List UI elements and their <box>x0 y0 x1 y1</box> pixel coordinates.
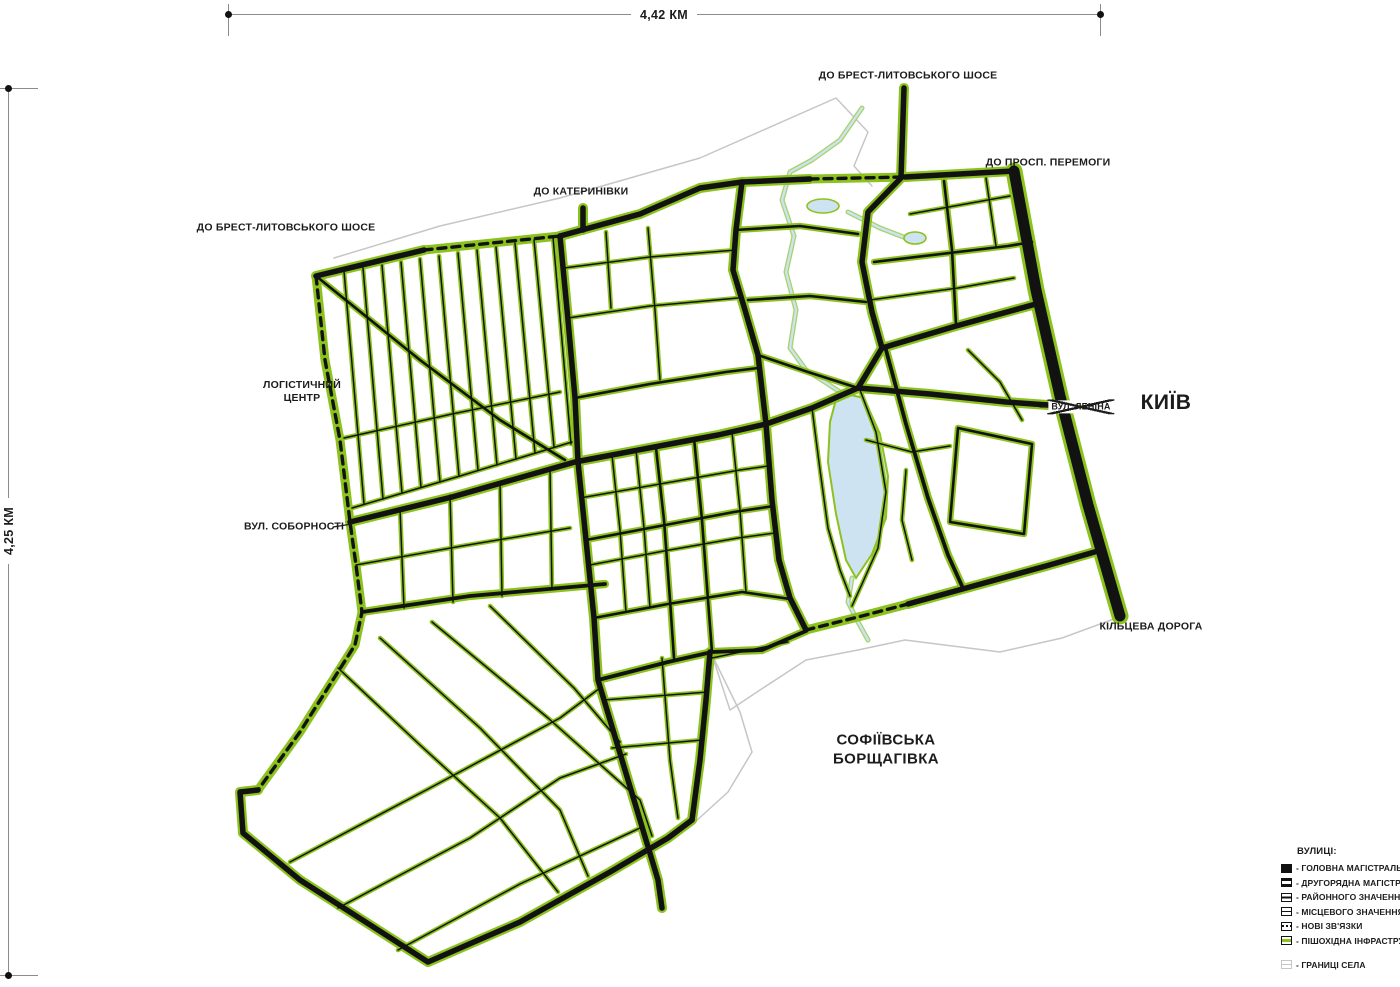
legend-item: - РАЙОННОГО ЗНАЧЕННЯ <box>1281 892 1399 902</box>
pedestrian-infrastructure-casing <box>902 470 912 560</box>
road-main-magistral <box>240 790 692 962</box>
road-local <box>612 740 702 748</box>
legend-swatch-pedestrian-icon <box>1281 936 1292 945</box>
legend-title: ВУЛИЦІ: <box>1297 846 1399 857</box>
road-main-magistral <box>901 88 904 178</box>
legend-item: - ДРУГОРЯДНА МАГІСТРАЛЬНА <box>1281 878 1399 888</box>
pedestrian-infrastructure-casing <box>258 276 362 790</box>
road-local <box>458 253 478 470</box>
road-local <box>356 528 570 565</box>
legend-swatch-local-icon <box>1281 907 1292 916</box>
legend-swatch-main-icon <box>1281 864 1292 873</box>
road-local <box>910 196 1010 214</box>
village-boundary-line <box>712 616 1122 710</box>
pedestrian-infrastructure-casing <box>290 688 600 862</box>
legend-swatch-boundary-icon <box>1281 960 1292 969</box>
legend-item: - МІСЦЕВОГО ЗНАЧЕННЯ <box>1281 907 1399 917</box>
road-new-link-dashed <box>424 236 560 250</box>
legend-item-label: - ГРАНИЦІ СЕЛА <box>1296 960 1366 970</box>
road-main-magistral <box>316 250 424 276</box>
scale-distance-label: 4,42 КМ <box>631 8 697 22</box>
pond <box>904 232 926 244</box>
legend-item: - ГРАНИЦІ СЕЛА <box>1281 960 1399 970</box>
map-canvas: ДО БРЕСТ-ЛИТОВСЬКОГО ШОСЕДО ПРОСП. ПЕРЕМ… <box>0 0 1400 987</box>
scale-distance-label: 4,25 КМ <box>2 498 16 564</box>
road-main-magistral <box>858 388 1062 406</box>
pedestrian-infrastructure-casing <box>968 350 1022 420</box>
scalebar-dot <box>5 85 12 92</box>
legend: ВУЛИЦІ: - ГОЛОВНА МАГІСТРАЛЬНА- ДРУГОРЯД… <box>1281 846 1399 974</box>
road-district <box>758 355 858 388</box>
legend-item-label: - НОВІ ЗВ'ЯЗКИ <box>1296 921 1362 931</box>
pedestrian-infrastructure-casing <box>398 828 640 950</box>
scalebar-dot <box>1097 11 1104 18</box>
road-local <box>534 240 554 447</box>
legend-item: - ГОЛОВНА МАГІСТРАЛЬНА <box>1281 863 1399 873</box>
road-secondary <box>598 631 806 680</box>
road-main-magistral <box>882 304 1036 348</box>
road-local <box>477 250 497 465</box>
stream-bank <box>782 108 862 392</box>
legend-swatch-secondary-icon <box>1281 878 1292 887</box>
legend-items: - ГОЛОВНА МАГІСТРАЛЬНА- ДРУГОРЯДНА МАГІС… <box>1281 863 1399 970</box>
legend-item: - ПІШОХІДНА ІНФРАСТРУКТУРА <box>1281 936 1399 946</box>
legend-swatch-new-icon <box>1281 922 1292 931</box>
pedestrian-infrastructure-casing <box>950 428 1032 534</box>
legend-item-label: - ПІШОХІДНА ІНФРАСТРУКТУРА <box>1296 936 1400 946</box>
legend-item-label: - МІСЦЕВОГО ЗНАЧЕННЯ <box>1296 907 1400 917</box>
scalebar-dot <box>225 11 232 18</box>
road-local <box>515 243 535 453</box>
road-local <box>439 256 459 476</box>
road-local <box>382 265 402 493</box>
legend-item: - НОВІ ЗВ'ЯЗКИ <box>1281 921 1399 931</box>
legend-item-label: - РАЙОННОГО ЗНАЧЕННЯ <box>1296 892 1400 902</box>
legend-item-label: - ГОЛОВНА МАГІСТРАЛЬНА <box>1296 863 1400 873</box>
road-local <box>363 268 383 499</box>
pond <box>807 199 839 213</box>
scalebar-tick <box>228 4 229 36</box>
road-network-map <box>0 0 1400 987</box>
legend-item-label: - ДРУГОРЯДНА МАГІСТРАЛЬНА <box>1296 878 1400 888</box>
road-local <box>986 178 996 246</box>
legend-swatch-district-icon <box>1281 893 1292 902</box>
road-local <box>604 692 708 700</box>
road-local <box>401 262 421 487</box>
pedestrian-infrastructure-casing <box>240 790 692 962</box>
scalebar-dot <box>5 972 12 979</box>
road-main-magistral <box>350 388 858 522</box>
road-main-magistral <box>908 551 1098 604</box>
scalebar-tick <box>1100 4 1101 36</box>
